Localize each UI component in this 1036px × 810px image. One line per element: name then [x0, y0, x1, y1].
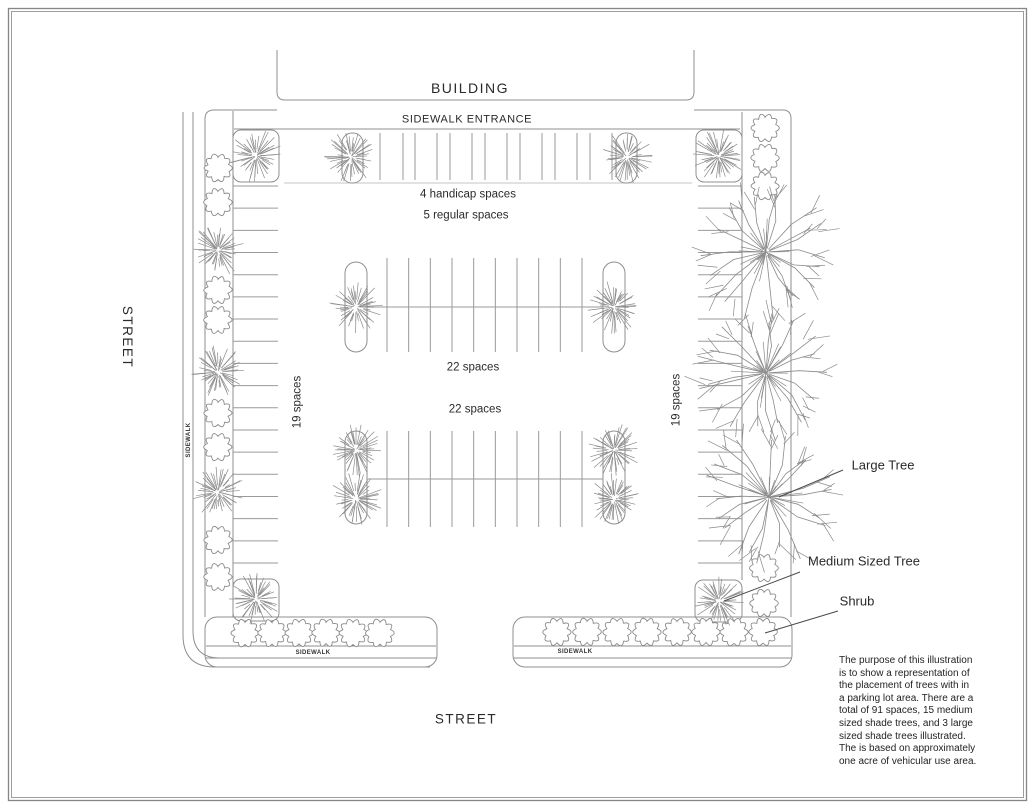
shrub-icon [204, 399, 232, 426]
medium-tree-icon [324, 133, 372, 181]
parking-lot-plan: BUILDING SIDEWALK ENTRANCE 4 handicap sp… [0, 0, 1036, 810]
building-label: BUILDING [431, 81, 509, 95]
shrub-icon [339, 619, 367, 646]
large-tree-icon [692, 182, 840, 335]
shrub-icon [366, 619, 395, 646]
parking-space-ticks [698, 186, 742, 563]
medium-tree-icon [588, 282, 637, 334]
shrub-icon [231, 619, 259, 646]
shrub-icon [692, 618, 721, 645]
sidewalk-left-label: SIDEWALK [186, 423, 192, 458]
handicap-spaces-label: 4 handicap spaces [420, 189, 516, 201]
medium-tree-icon [192, 346, 244, 396]
right-column-spaces-label: 19 spaces [671, 374, 683, 426]
medium-tree-icon [193, 467, 242, 512]
shrub-icon [751, 114, 779, 141]
shrub-icon [204, 307, 232, 334]
street-bottom-label: STREET [435, 712, 497, 726]
parking-space-ticks [233, 186, 278, 563]
shrub-icon [204, 189, 233, 216]
medium-tree-icon [589, 425, 638, 476]
street-left-label: STREET [120, 306, 134, 368]
parking-space-ticks [380, 133, 612, 180]
medium-tree-icon [230, 131, 280, 182]
shrub-icon [543, 618, 571, 645]
shrub-icon [204, 564, 232, 591]
shrub-legend-label: Shrub [840, 595, 875, 608]
large-tree-icon [706, 421, 843, 573]
row2-spaces-label: 22 spaces [447, 362, 499, 374]
medium-tree-icon [329, 282, 382, 333]
shrub-icon [204, 276, 232, 303]
shrub-icon [285, 619, 313, 646]
shrub-icon [720, 618, 748, 645]
shrub-icon [750, 555, 779, 582]
medium-tree-icon [333, 473, 381, 524]
sidewalk-bottom-left-label: SIDEWALK [296, 650, 331, 656]
shrub-icon [749, 618, 778, 645]
medium-tree-icon [333, 425, 381, 477]
row3-spaces-label: 22 spaces [449, 404, 501, 416]
tree-planter [233, 579, 279, 621]
tree-planter [696, 130, 742, 182]
shrub-icon [751, 144, 779, 171]
shrub-icon [633, 618, 661, 645]
sidewalk-bottom-right-label: SIDEWALK [558, 649, 593, 655]
regular-spaces-label: 5 regular spaces [423, 210, 508, 222]
shrub-icon [603, 618, 631, 645]
medium-tree-icon [594, 473, 639, 524]
shrub-icon [312, 619, 340, 646]
shrub-icon [204, 526, 232, 553]
medium-tree-icon [693, 130, 741, 178]
sidewalk-entrance-label: SIDEWALK ENTRANCE [402, 115, 532, 126]
shrub-icon [258, 619, 286, 646]
large-tree-icon [684, 300, 837, 449]
shrub-icon [663, 619, 691, 646]
tree-planter [233, 130, 279, 182]
shrub-icon [204, 434, 232, 461]
parking-space-ticks [387, 258, 582, 352]
medium-tree-legend-label: Medium Sized Tree [808, 555, 920, 568]
legend-leader-line [765, 611, 838, 633]
shrub-icon [573, 618, 602, 645]
large-tree-legend-label: Large Tree [852, 459, 915, 472]
shrub-icon [204, 154, 232, 182]
medium-tree-icon [194, 227, 244, 274]
caption-text: The purpose of this illustration is to s… [839, 655, 1011, 768]
shrub-icon [750, 589, 779, 616]
left-column-spaces-label: 19 spaces [292, 376, 304, 428]
medium-tree-icon [603, 134, 652, 183]
